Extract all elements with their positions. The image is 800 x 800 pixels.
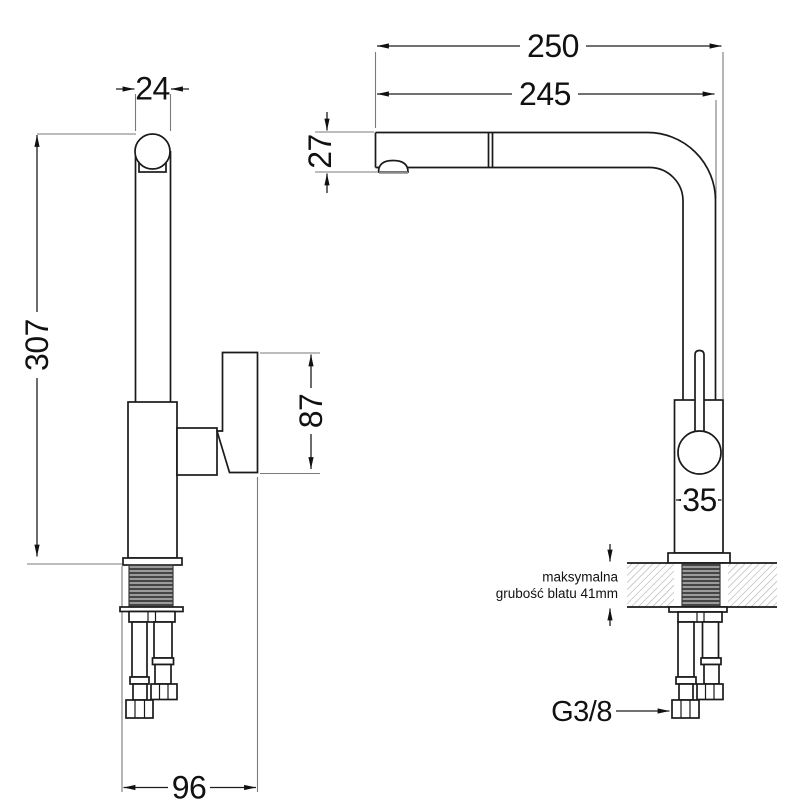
- spout-inner-contour: [376, 168, 684, 401]
- dimension-spout-height: 27: [302, 112, 338, 193]
- dimension-label-27: 27: [302, 134, 338, 169]
- rotated-label-group: 27: [302, 134, 338, 169]
- dimension-base-width: 96: [124, 770, 257, 800]
- handle-knob-circle: [678, 431, 721, 474]
- faucet-front-body: [376, 132, 778, 718]
- faucet-side-body: [120, 134, 258, 718]
- side-view: 24 307 87 96: [19, 71, 329, 800]
- stud-coupler: [130, 677, 149, 684]
- spout-outer-contour: [376, 132, 716, 400]
- dimension-label-87: 87: [293, 394, 329, 429]
- rotated-label-group: 87: [293, 388, 329, 434]
- dimension-top-width: 24: [116, 71, 189, 107]
- dimension-spray-head-height: 87: [293, 355, 329, 470]
- countertop-note-line1: maksymalna: [542, 570, 618, 585]
- dimension-reach: 245: [377, 76, 715, 112]
- connection-thread-callout: G3/8: [551, 696, 669, 728]
- dimension-reach-total: 250: [377, 28, 722, 64]
- dimension-label-250: 250: [527, 28, 579, 64]
- hose-nut: [697, 684, 723, 700]
- mounting-thread: [682, 563, 720, 607]
- dimension-label-307: 307: [19, 319, 55, 371]
- dimension-body-width: 35: [676, 482, 722, 518]
- hose-lower-section: [155, 665, 171, 685]
- dimension-total-height: 307: [19, 135, 55, 557]
- connection-label-g38: G3/8: [551, 696, 612, 728]
- spout-end-circle: [135, 134, 170, 169]
- mounting-nut-row: [129, 612, 175, 623]
- stud-lower-section: [679, 684, 693, 700]
- dimension-label-24: 24: [135, 71, 170, 107]
- deck-flange: [123, 558, 182, 565]
- stud-nut: [672, 700, 699, 718]
- dimension-label-96: 96: [172, 770, 207, 800]
- spray-head: [217, 353, 258, 473]
- hose-coupler: [153, 658, 174, 665]
- deck-flange: [668, 553, 730, 563]
- mounting-nut-row: [678, 612, 722, 622]
- mounting-thread: [129, 565, 173, 607]
- supply-hose: [703, 622, 719, 658]
- stud-coupler: [676, 677, 696, 684]
- hose-lower-section: [704, 665, 719, 685]
- stud-lower-section: [133, 684, 147, 700]
- dimension-label-245: 245: [519, 76, 571, 112]
- countertop-thickness-callout: maksymalna grubość blatu 41mm: [496, 544, 619, 626]
- lever-handle-rod: [695, 351, 704, 435]
- mounting-stud: [678, 622, 694, 677]
- supply-hose: [154, 622, 172, 658]
- technical-drawing-page: 24 307 87 96: [0, 0, 800, 800]
- hose-nut: [151, 684, 177, 700]
- rotated-label-group: 307: [19, 312, 55, 378]
- faucet-technical-drawing: 24 307 87 96: [0, 0, 800, 800]
- stud-nut: [126, 700, 153, 718]
- faucet-body-column: [128, 402, 177, 558]
- mounting-stud: [132, 622, 147, 677]
- countertop-note-line2: grubość blatu 41mm: [496, 586, 618, 601]
- hose-coupler: [701, 658, 721, 665]
- front-view: 250 245 27 35 maksymalna grubość b: [302, 28, 777, 728]
- aerator: [379, 161, 409, 173]
- spray-head-connector: [177, 428, 217, 475]
- dimension-label-35: 35: [682, 482, 717, 518]
